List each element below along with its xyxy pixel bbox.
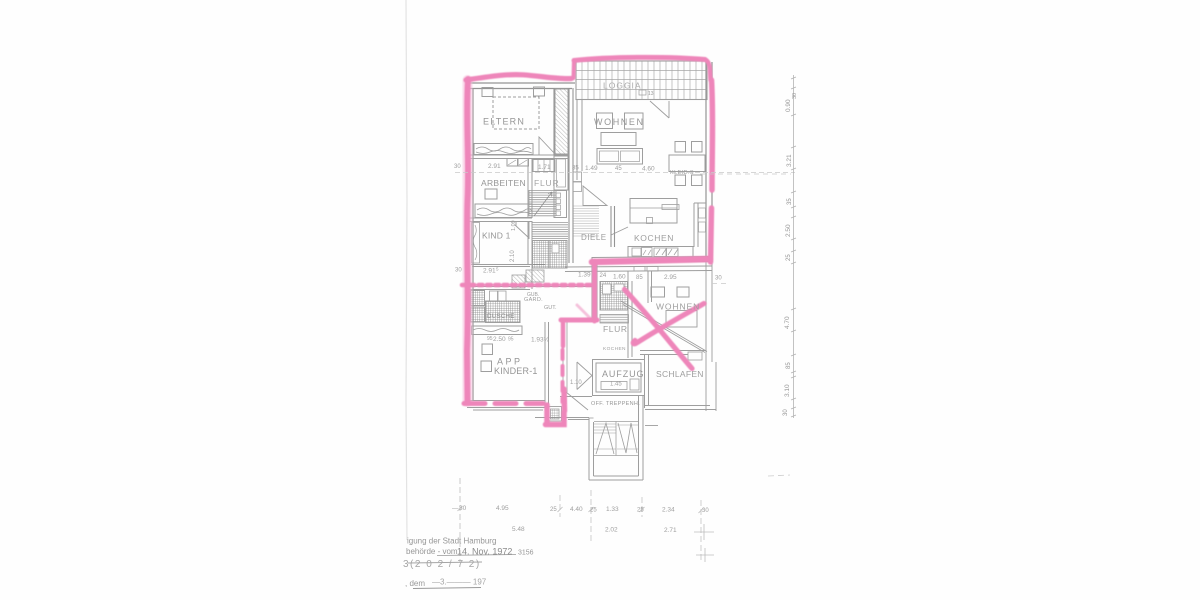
svg-text:30: 30 [715, 276, 722, 282]
svg-text:2.91: 2.91 [483, 268, 496, 275]
svg-text:4.60: 4.60 [642, 166, 655, 173]
svg-text:2.71: 2.71 [664, 527, 677, 534]
svg-text:WOHNEN: WOHNEN [656, 302, 700, 312]
svg-text:LOGGIA: LOGGIA [603, 81, 642, 91]
svg-text:3.10: 3.10 [784, 384, 791, 397]
svg-text:behörde - vom: behörde - vom [406, 547, 458, 556]
svg-text:95: 95 [508, 337, 514, 343]
svg-text:1.39: 1.39 [578, 272, 591, 279]
svg-text:30: 30 [783, 409, 789, 416]
svg-text:KINDER-1: KINDER-1 [494, 366, 538, 376]
svg-text:2.34: 2.34 [662, 507, 675, 514]
svg-text:1.60: 1.60 [613, 274, 626, 281]
svg-text:3.21: 3.21 [786, 154, 793, 167]
svg-text:1.10: 1.10 [570, 380, 582, 386]
svg-text:FLUR: FLUR [603, 324, 628, 334]
svg-text:KOCHEN: KOCHEN [603, 346, 626, 352]
svg-text:35: 35 [572, 166, 579, 172]
svg-text:30: 30 [459, 505, 467, 512]
svg-text:1.93½: 1.93½ [531, 336, 550, 344]
svg-text:45: 45 [615, 166, 622, 172]
svg-text:KLEID.S: KLEID.S [670, 170, 694, 176]
svg-text:0.90: 0.90 [785, 99, 792, 112]
svg-text:2.95: 2.95 [664, 274, 677, 281]
svg-text:2.50: 2.50 [785, 224, 792, 237]
svg-text:4.95: 4.95 [496, 505, 509, 512]
svg-text:ELTERN: ELTERN [483, 117, 525, 127]
svg-text:35: 35 [787, 198, 793, 205]
svg-text:1.33: 1.33 [606, 506, 619, 513]
svg-text:30: 30 [792, 93, 798, 99]
svg-text:25: 25 [550, 507, 557, 513]
svg-text:SCHLAFEN: SCHLAFEN [656, 369, 704, 379]
svg-text:igung der Stadt Hamburg: igung der Stadt Hamburg [407, 537, 496, 546]
svg-text:APP: APP [497, 357, 523, 367]
svg-text:KOCHEN: KOCHEN [634, 233, 674, 243]
svg-text:WOHNEN: WOHNEN [594, 117, 645, 127]
svg-text:2.50: 2.50 [493, 336, 506, 343]
svg-text:2.91: 2.91 [488, 163, 501, 170]
svg-text:GUB.: GUB. [527, 292, 539, 298]
svg-text:OFF. TREPPENH.: OFF. TREPPENH. [591, 401, 640, 407]
svg-text:3156: 3156 [518, 550, 534, 557]
svg-text:—3.——— 197: —3.——— 197 [432, 578, 487, 587]
svg-text:25: 25 [637, 508, 644, 514]
svg-text:FLUR: FLUR [534, 178, 559, 188]
svg-text:5.48: 5.48 [512, 526, 525, 533]
svg-text:1.49: 1.49 [585, 165, 598, 172]
svg-text:95: 95 [487, 336, 493, 342]
svg-text:1.71: 1.71 [538, 164, 551, 171]
svg-text:24: 24 [600, 273, 607, 279]
svg-text:1.45: 1.45 [610, 382, 622, 388]
svg-text:DUSCHE: DUSCHE [487, 314, 515, 320]
svg-text:GUT.: GUT. [544, 305, 557, 311]
svg-text:25: 25 [786, 254, 792, 261]
svg-text:KIND 1: KIND 1 [482, 231, 511, 241]
svg-text:85: 85 [786, 362, 792, 369]
svg-text:30: 30 [702, 508, 709, 514]
svg-text:4.70: 4.70 [784, 316, 791, 329]
svg-text:25: 25 [590, 508, 597, 514]
svg-text:30: 30 [455, 268, 462, 274]
svg-text:85: 85 [636, 275, 643, 281]
svg-text:AUFZUG: AUFZUG [602, 369, 644, 379]
svg-text:2.02: 2.02 [605, 527, 618, 534]
svg-text:2.10: 2.10 [510, 250, 516, 262]
svg-text:, dem: , dem [405, 579, 425, 588]
svg-text:13: 13 [648, 91, 654, 97]
svg-text:ARBEITEN: ARBEITEN [481, 178, 526, 188]
svg-text:—: — [452, 505, 459, 512]
svg-text:4.40: 4.40 [570, 506, 583, 513]
svg-text:1.09: 1.09 [511, 220, 517, 231]
svg-text:30: 30 [454, 164, 461, 170]
svg-text:3(2 0 2 / 7 2): 3(2 0 2 / 7 2) [403, 559, 481, 570]
svg-text:DIELE: DIELE [581, 233, 607, 242]
